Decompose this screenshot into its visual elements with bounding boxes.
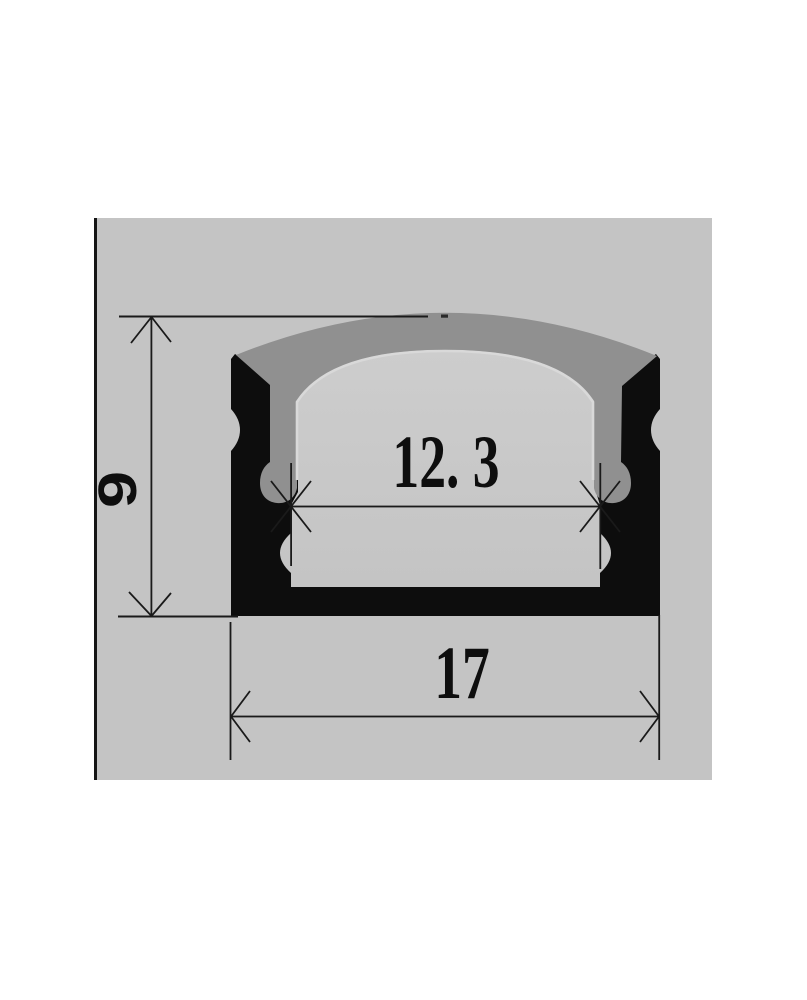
svg-text:17: 17 — [434, 632, 489, 715]
svg-text:9: 9 — [87, 471, 147, 508]
svg-text:12. 3: 12. 3 — [392, 421, 499, 504]
